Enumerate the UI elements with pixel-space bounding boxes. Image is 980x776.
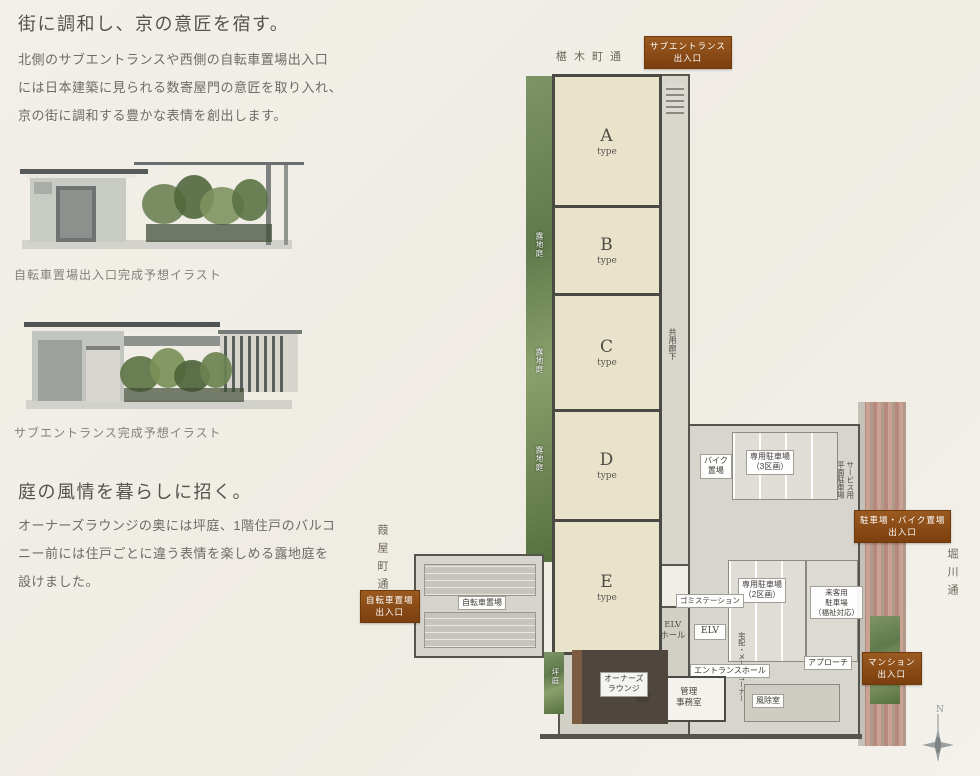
stairs-icon bbox=[666, 84, 684, 114]
garden-label-2: 露地庭 bbox=[534, 348, 545, 374]
garbage-station-label: ゴミステーション bbox=[676, 594, 744, 608]
unit-a-type-word: type bbox=[597, 147, 617, 157]
elv-hall-label: ELV ホール bbox=[660, 620, 686, 641]
unit-b: B type bbox=[552, 205, 662, 296]
management-office-label: 管理 事務室 bbox=[676, 686, 702, 707]
parking-bike-entrance-badge: 駐車場・バイク置場 出入口 bbox=[854, 510, 951, 543]
unit-b-letter: B bbox=[600, 235, 614, 255]
unit-e-type-word: type bbox=[597, 593, 617, 603]
unit-c: C type bbox=[552, 293, 662, 412]
unit-c-type-word: type bbox=[597, 358, 617, 368]
bicycle-entrance-badge: 自転車置場 出入口 bbox=[360, 590, 420, 623]
brochure-page: 街に調和し、京の意匠を宿す。 北側のサブエントランスや西側の自転車置場出入口 に… bbox=[0, 0, 980, 776]
garden-label-1: 露地庭 bbox=[534, 232, 545, 258]
garden-body: オーナーズラウンジの奥には坪庭、1階住戸のバルコ ニー前には住戸ごとに違う表情を… bbox=[18, 512, 358, 596]
south-boundary-wall bbox=[540, 734, 862, 739]
private-parking-3-label: 専用駐車場 （3区画） bbox=[746, 450, 794, 475]
sub-entrance-badge: サブエントランス 出入口 bbox=[644, 36, 732, 69]
service-parking-label: サービス用 平面駐車場 bbox=[836, 440, 855, 520]
windbreak-label: 風除室 bbox=[752, 694, 784, 708]
elevator-label: ELV bbox=[694, 624, 726, 640]
mansion-entrance-badge: マンション 出入口 bbox=[862, 652, 922, 685]
unit-d-type-word: type bbox=[597, 471, 617, 481]
unit-e: E type bbox=[552, 519, 662, 655]
owners-lounge-deck bbox=[572, 650, 582, 724]
tsubo-garden-label: 坪庭 bbox=[550, 668, 561, 685]
bicycle-rack bbox=[424, 612, 536, 648]
visitor-parking-label: 来客用 駐車場 （福祉対応） bbox=[810, 586, 863, 619]
bicycle-entrance-illustration bbox=[14, 142, 310, 262]
bicycle-rack bbox=[424, 564, 536, 596]
sub-entrance-illustration bbox=[20, 300, 306, 418]
bike-storage-label: バイク 置場 bbox=[700, 454, 732, 479]
unit-c-letter: C bbox=[600, 337, 614, 357]
illustration1-caption: 自転車置場出入口完成予想イラスト bbox=[14, 266, 222, 283]
street-name-top: 椹木町通 bbox=[556, 48, 628, 64]
unit-d-letter: D bbox=[600, 450, 615, 470]
common-corridor bbox=[660, 74, 690, 566]
unit-b-type-word: type bbox=[597, 256, 617, 266]
bicycle-parking-label: 自転車置場 bbox=[458, 596, 506, 610]
unit-a: A type bbox=[552, 74, 662, 208]
compass-north-label: N bbox=[936, 705, 944, 715]
illustration2-caption: サブエントランス完成予想イラスト bbox=[14, 424, 222, 441]
approach-label: アプローチ bbox=[804, 656, 852, 670]
design-body: 北側のサブエントランスや西側の自転車置場出入口 には日本建築に見られる数寄屋門の… bbox=[18, 46, 358, 130]
street-name-east: 堀川通 bbox=[944, 548, 960, 628]
compass: N bbox=[914, 698, 962, 770]
unit-d: D type bbox=[552, 409, 662, 522]
west-garden-strip bbox=[526, 76, 552, 562]
garden-label-3: 露地庭 bbox=[534, 446, 545, 472]
corridor-label: 共用廊下 bbox=[667, 328, 677, 360]
owners-lounge-label: オーナーズ ラウンジ bbox=[600, 672, 648, 697]
garden-heading: 庭の風情を暮らしに招く。 bbox=[18, 478, 252, 504]
design-heading: 街に調和し、京の意匠を宿す。 bbox=[18, 10, 289, 36]
unit-e-letter: E bbox=[600, 572, 613, 592]
private-parking-2-label: 専用駐車場 （2区画） bbox=[738, 578, 786, 603]
unit-a-letter: A bbox=[600, 126, 613, 146]
